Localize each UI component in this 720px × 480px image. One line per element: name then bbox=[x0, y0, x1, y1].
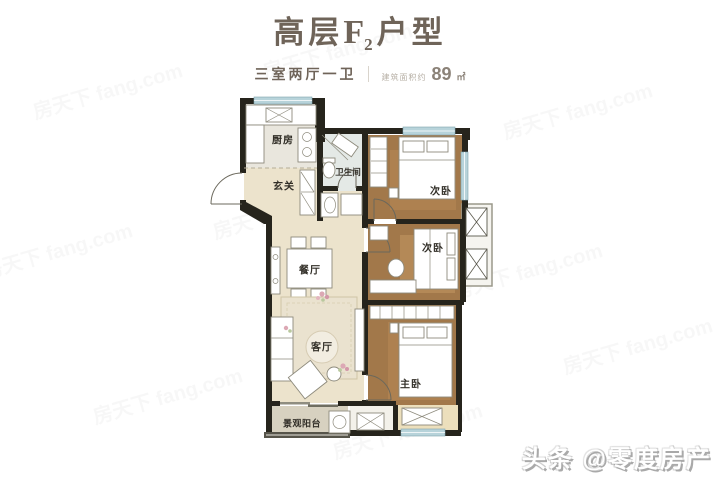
floorplan-svg bbox=[0, 0, 720, 480]
room-label-kitchen: 厨房 bbox=[272, 132, 294, 147]
page: 房天下 fang.com 房天下 fang.com 房天下 fang.com 房… bbox=[0, 0, 720, 480]
room-label-entry: 玄关 bbox=[273, 178, 295, 193]
room-label-bedroom2a: 次卧 bbox=[430, 183, 452, 198]
brand-watermark: 头条 @零度房产 bbox=[522, 439, 712, 474]
room-label-balcony: 景观阳台 bbox=[283, 417, 321, 430]
room-label-dining: 餐厅 bbox=[299, 262, 321, 277]
room-label-living: 客厅 bbox=[311, 339, 333, 354]
room-label-bedroom2b: 次卧 bbox=[422, 240, 444, 255]
room-label-master: 主卧 bbox=[400, 376, 422, 391]
room-label-bathroom: 卫生间 bbox=[335, 166, 361, 178]
